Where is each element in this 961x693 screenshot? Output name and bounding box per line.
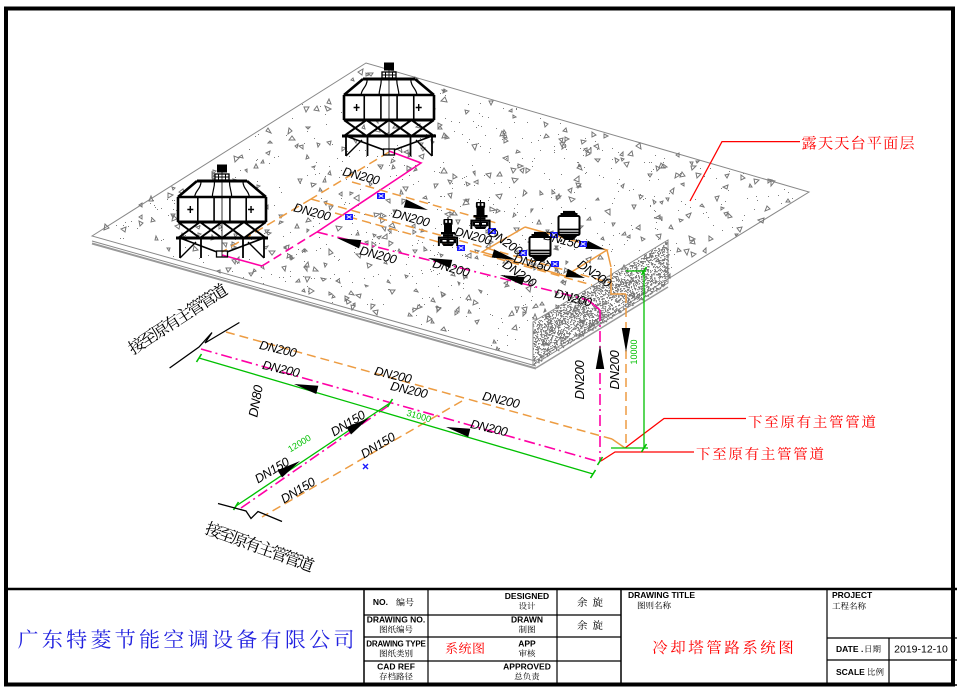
- svg-text:DATE: DATE: [836, 644, 859, 654]
- svg-text:DN200: DN200: [607, 349, 622, 389]
- svg-text:DRAWN: DRAWN: [511, 615, 543, 625]
- svg-text:NO.: NO.: [373, 597, 388, 607]
- svg-text:DESIGNED: DESIGNED: [505, 591, 549, 601]
- svg-text:SCALE: SCALE: [836, 667, 865, 677]
- svg-text:PROJECT: PROJECT: [832, 590, 873, 600]
- svg-text:.: .: [861, 644, 863, 654]
- svg-text:2019-12-10: 2019-12-10: [894, 644, 948, 656]
- svg-text:10000: 10000: [629, 339, 639, 364]
- svg-text:DN200: DN200: [572, 359, 587, 399]
- svg-text:CAD REF: CAD REF: [377, 662, 415, 672]
- svg-text:DRAWING TYPE: DRAWING TYPE: [366, 640, 426, 649]
- svg-text:DRAWING TITLE: DRAWING TITLE: [628, 590, 695, 600]
- svg-text:APP: APP: [518, 639, 536, 649]
- svg-text:APPROVED: APPROVED: [503, 662, 551, 672]
- svg-text:DRAWING NO.: DRAWING NO.: [367, 615, 426, 625]
